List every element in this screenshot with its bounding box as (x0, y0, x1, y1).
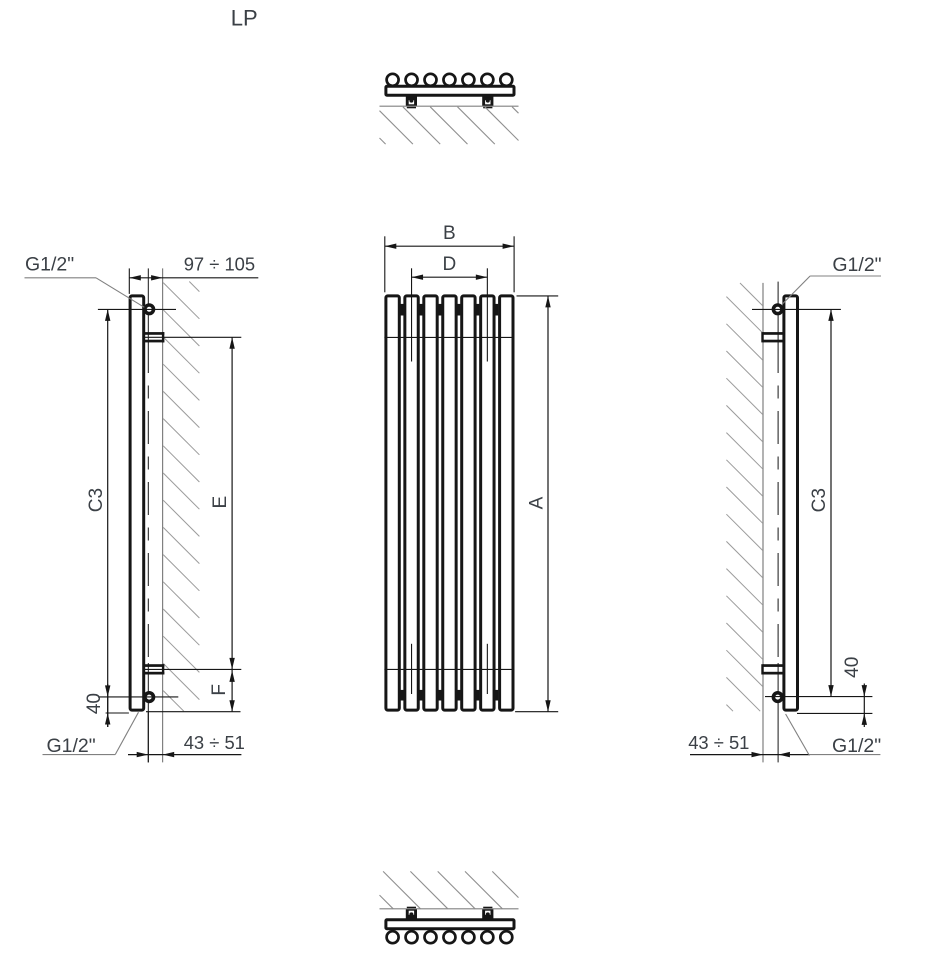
svg-text:G1/2": G1/2" (47, 735, 96, 757)
svg-text:A: A (527, 496, 548, 509)
svg-text:B: B (443, 223, 456, 244)
svg-text:G1/2": G1/2" (832, 254, 881, 276)
svg-text:C3: C3 (86, 488, 107, 512)
svg-text:F: F (209, 684, 230, 696)
svg-text:97 ÷ 105: 97 ÷ 105 (184, 253, 255, 274)
svg-text:43 ÷ 51: 43 ÷ 51 (184, 732, 245, 753)
svg-text:40: 40 (842, 657, 863, 678)
svg-text:LP: LP (231, 6, 258, 31)
svg-text:D: D (443, 254, 457, 275)
svg-text:E: E (210, 496, 231, 509)
svg-text:40: 40 (84, 693, 105, 714)
svg-text:C3: C3 (809, 488, 830, 512)
svg-text:G1/2": G1/2" (832, 735, 881, 757)
svg-text:43 ÷ 51: 43 ÷ 51 (688, 732, 749, 753)
svg-text:G1/2": G1/2" (25, 254, 74, 276)
